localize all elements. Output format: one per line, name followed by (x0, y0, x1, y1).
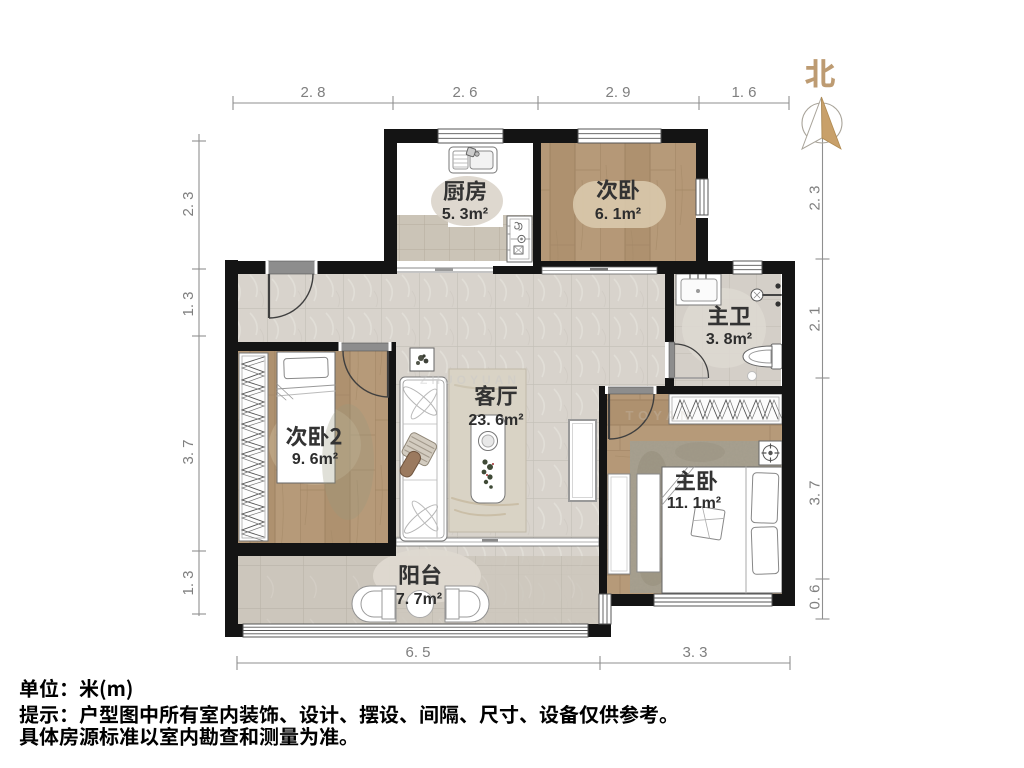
svg-text:23. 6m²: 23. 6m² (468, 412, 523, 429)
svg-text:3. 3: 3. 3 (682, 644, 707, 661)
svg-text:2. 8: 2. 8 (300, 84, 325, 101)
svg-text:2. 3: 2. 3 (807, 185, 824, 210)
svg-text:3. 7: 3. 7 (180, 439, 197, 464)
svg-text:7. 7m²: 7. 7m² (396, 591, 442, 608)
svg-text:3. 8m²: 3. 8m² (706, 331, 752, 348)
svg-text:6. 5: 6. 5 (405, 644, 430, 661)
svg-text:9. 6m²: 9. 6m² (292, 451, 338, 468)
svg-text:0. 6: 0. 6 (807, 584, 824, 609)
svg-text:2. 3: 2. 3 (180, 191, 197, 216)
svg-text:6. 1m²: 6. 1m² (595, 206, 641, 223)
svg-text:5. 3m²: 5. 3m² (442, 206, 488, 223)
svg-text:2. 6: 2. 6 (452, 84, 477, 101)
svg-text:2. 1: 2. 1 (807, 306, 824, 331)
svg-text:2. 9: 2. 9 (605, 84, 630, 101)
svg-text:1. 6: 1. 6 (731, 84, 756, 101)
svg-text:TOYAN: TOYAN (625, 408, 694, 423)
svg-text:3. 7: 3. 7 (807, 480, 824, 505)
svg-text:ZHUOYUAN: ZHUOYUAN (420, 373, 520, 387)
svg-text:1. 3: 1. 3 (180, 570, 197, 595)
svg-text:11. 1m²: 11. 1m² (667, 495, 721, 512)
svg-text:1. 3: 1. 3 (180, 291, 197, 316)
